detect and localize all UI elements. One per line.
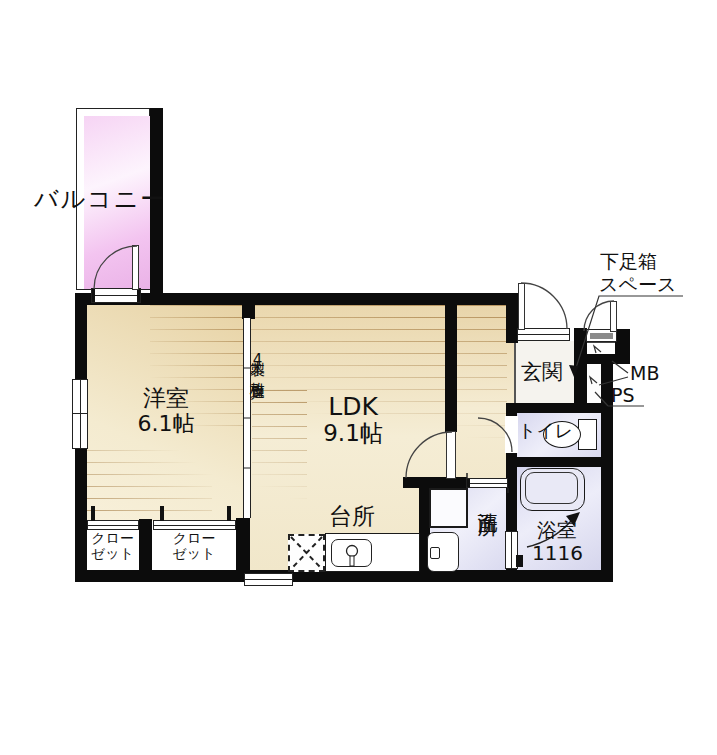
wall-ldk-hall — [445, 305, 457, 432]
ldk-size: 9.1帖 — [308, 421, 398, 446]
wall-left-lower — [75, 449, 87, 582]
partition-note-label: 木製4枚引違戸 — [249, 349, 266, 374]
bathroom-size: 1116 — [532, 542, 582, 564]
washroom-label: 洗面所 — [477, 497, 499, 503]
washing-machine-space — [429, 488, 468, 528]
balcony-door-leaf — [132, 245, 139, 290]
wall-toilet-top — [506, 403, 613, 413]
front-door-arc — [521, 283, 567, 329]
west-window — [72, 379, 88, 449]
closet-left-label: クロー ゼット — [86, 531, 139, 562]
closet-right-line2: ゼット — [152, 546, 236, 561]
partition-sliding-door — [243, 318, 251, 518]
floor-plan: バルコニー 洋室 6.1帖 LDK 9.1帖 台所 木製4枚引違戸 玄関 トイレ… — [0, 0, 717, 755]
wall-partition-stub-top — [242, 305, 255, 319]
closet-door-pivot-2 — [160, 506, 164, 521]
kitchen-label: 台所 — [329, 504, 375, 529]
flooring-hatch-ldk-left — [252, 390, 307, 505]
flooring-hatch-western-bottom — [87, 450, 212, 518]
wall-washroom-top — [403, 477, 467, 488]
closet-door-pivot-1 — [91, 506, 95, 521]
refrigerator-space — [288, 534, 325, 572]
closet-left-line1: クロー — [86, 531, 139, 546]
shoe-box-label-line2: スペース — [599, 274, 676, 295]
wall-closet-right — [236, 518, 250, 578]
western-room-label: 洋室 — [118, 386, 214, 411]
closet-left-line2: ゼット — [86, 546, 139, 561]
vanity-sink — [427, 532, 459, 572]
toilet-label: トイレ — [518, 421, 573, 441]
wall-left-upper — [75, 293, 87, 379]
closet-right-door-track — [153, 520, 236, 530]
balcony-label: バルコニー — [34, 186, 166, 212]
ps-label: PS — [611, 385, 635, 406]
closet-right-line1: クロー — [152, 531, 236, 546]
mb-label: MB — [630, 363, 659, 384]
closet-right-label: クロー ゼット — [152, 531, 236, 562]
wall-closet-divider — [139, 519, 152, 578]
washroom-sliding-door — [466, 478, 508, 488]
kitchen-sink — [331, 539, 372, 567]
flooring-hatch-hall — [457, 305, 507, 460]
western-room-size: 6.1帖 — [118, 412, 214, 436]
toilet-door-opening — [505, 416, 518, 453]
wall-top-main — [75, 293, 518, 305]
ldk-label: LDK — [308, 393, 398, 421]
bathroom-door-handle — [516, 555, 523, 567]
bathtub — [520, 468, 585, 511]
ldk-bottom-window — [244, 573, 293, 586]
shoe-box-label-line1: 下足箱 — [600, 251, 657, 272]
shoe-box-door-leaf — [610, 301, 617, 332]
bathroom-label: 浴室 — [532, 519, 582, 541]
closet-left-door-track — [87, 520, 139, 530]
front-door-leaf — [518, 283, 525, 330]
wall-toilet-bottom — [506, 457, 613, 467]
ldk-door-leaf — [446, 431, 456, 479]
entrance-label: 玄関 — [521, 361, 563, 384]
closet-door-pivot-3 — [227, 506, 231, 521]
balcony-door-sill — [91, 288, 141, 303]
